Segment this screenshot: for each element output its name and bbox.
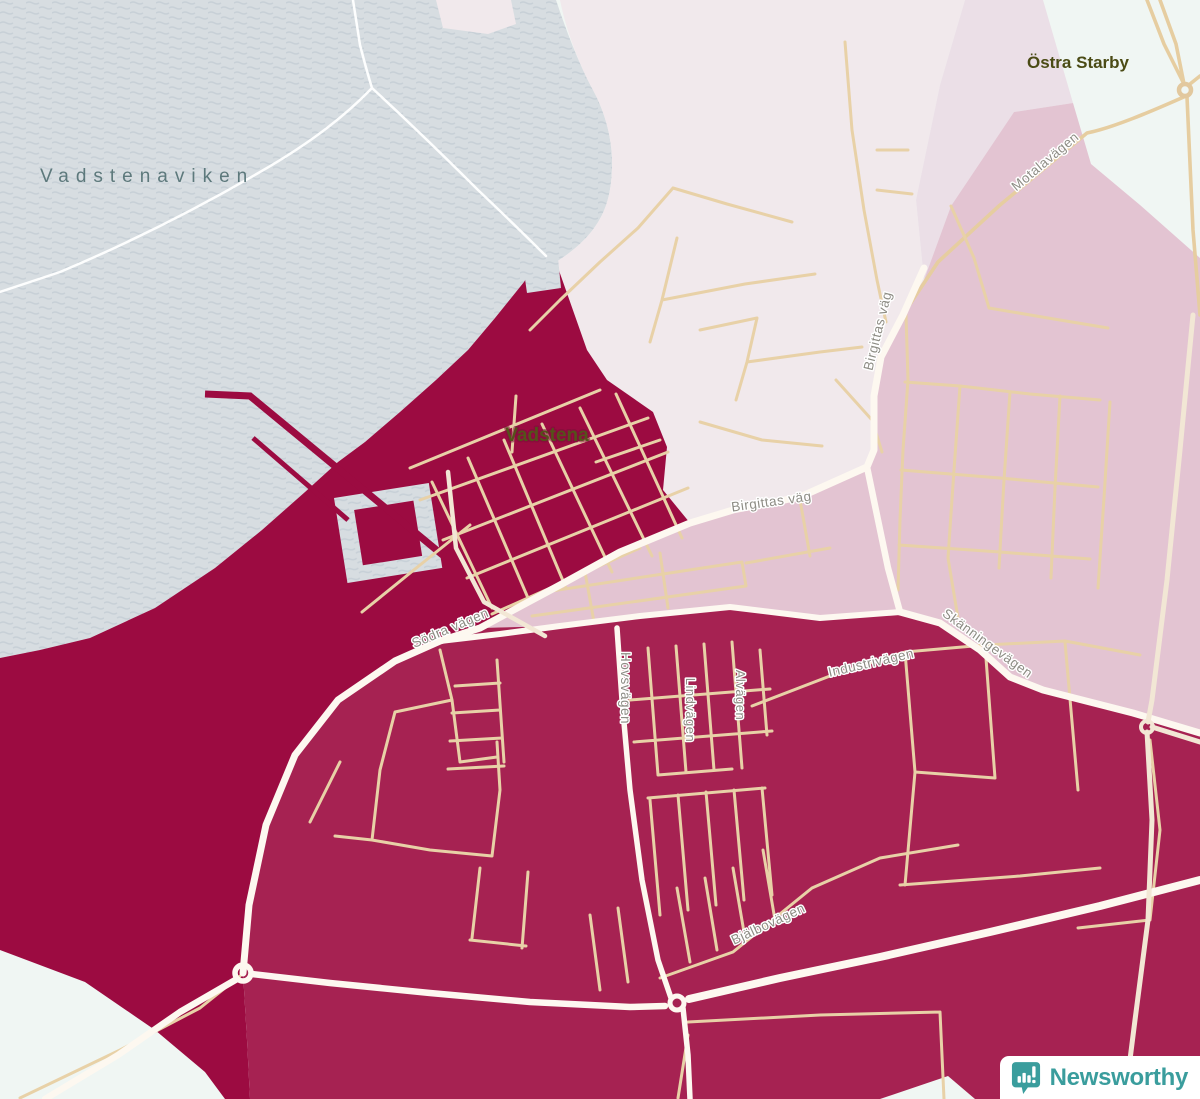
road-label-alvagen: Alvägen	[733, 670, 748, 720]
newsworthy-logo[interactable]: Newsworthy	[1000, 1056, 1200, 1099]
road-label-hovsvagen: Hovsvägen	[618, 652, 633, 724]
newsworthy-chart-bubble-icon	[1011, 1061, 1041, 1095]
map-screenshot: Vadstenaviken Östra Starby Vadstena Mota…	[0, 0, 1200, 1099]
choropleth-map: Vadstenaviken Östra Starby Vadstena Mota…	[0, 0, 1200, 1099]
harbor-basin	[521, 248, 561, 293]
road-label-lindvagen: Lindvägen	[683, 678, 698, 743]
roundabout-northeast	[1179, 84, 1191, 96]
water-label: Vadstenaviken	[40, 166, 254, 187]
newsworthy-logo-text: Newsworthy	[1050, 1064, 1188, 1092]
place-label-ostra-starby: Östra Starby	[1027, 53, 1130, 72]
city-label-vadstena: Vadstena	[505, 425, 589, 446]
